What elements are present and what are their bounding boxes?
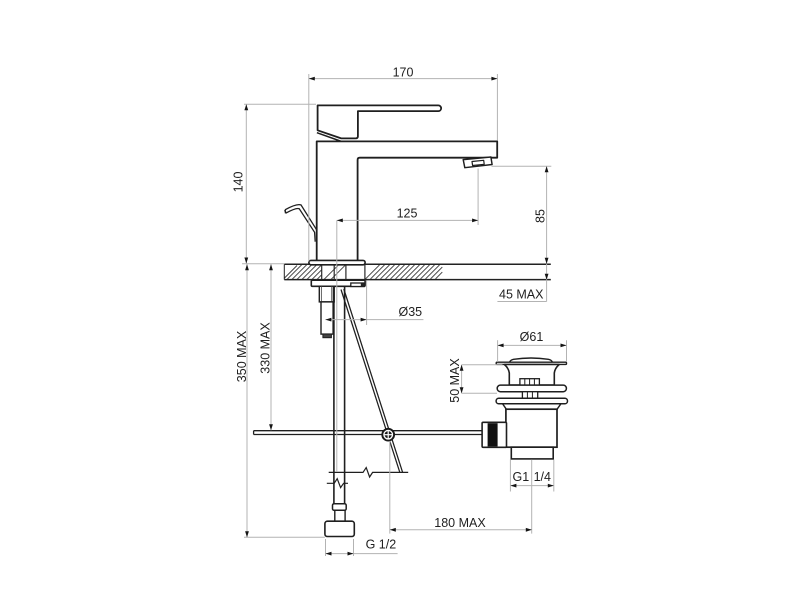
svg-text:85: 85 [533,209,547,223]
svg-text:125: 125 [397,207,418,221]
svg-text:180 MAX: 180 MAX [434,516,486,530]
svg-text:G1: G1 [513,470,530,484]
svg-text:330 MAX: 330 MAX [259,322,273,374]
svg-text:50 MAX: 50 MAX [448,358,462,403]
svg-text:350 MAX: 350 MAX [235,330,249,382]
svg-text:G 1/2: G 1/2 [366,538,397,552]
svg-text:Ø35: Ø35 [398,305,422,319]
svg-text:1/4: 1/4 [534,470,551,484]
svg-text:Ø61: Ø61 [520,330,544,344]
svg-text:140: 140 [232,172,246,193]
svg-text:45 MAX: 45 MAX [499,288,544,302]
svg-text:170: 170 [393,66,414,80]
